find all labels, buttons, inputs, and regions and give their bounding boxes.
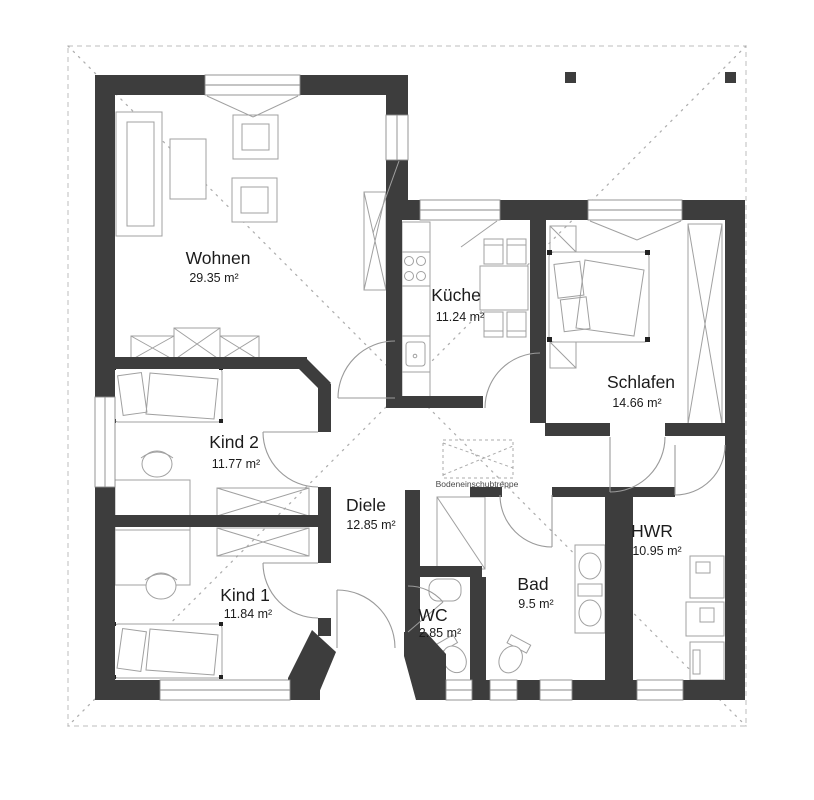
window-kind2-left xyxy=(95,397,115,487)
toilet xyxy=(494,635,530,677)
window-bad-bottom xyxy=(490,680,517,700)
label-wc: WC xyxy=(418,605,447,625)
area-bad: 9.5 m² xyxy=(518,597,553,611)
wardrobe xyxy=(217,528,309,556)
vanity xyxy=(575,545,605,633)
label-schlafen: Schlafen xyxy=(607,372,675,392)
dining-table xyxy=(480,239,528,337)
furniture-schlafen xyxy=(547,224,722,424)
door-bad xyxy=(500,495,552,547)
wardrobe xyxy=(217,488,309,516)
hand-basin xyxy=(429,579,461,601)
kitchen-counter xyxy=(402,222,430,402)
furniture-hwr xyxy=(686,556,724,680)
window-bad-bottom2 xyxy=(540,680,572,700)
washing-machine xyxy=(686,602,724,636)
floor-plan-canvas: Wohnen 29.35 m² Küche 11.24 m² Schlafen … xyxy=(0,0,814,800)
single-bed xyxy=(112,366,223,423)
double-bed xyxy=(547,250,650,342)
chair xyxy=(141,451,173,477)
door-schlafen xyxy=(610,437,665,492)
loft-ladder-hatch xyxy=(443,440,513,478)
area-wc: 2.85 m² xyxy=(419,626,461,640)
appliance xyxy=(690,556,724,598)
window-hwr-bottom xyxy=(637,680,683,700)
roof-post xyxy=(565,72,576,83)
shower xyxy=(437,497,485,569)
armchair xyxy=(232,178,277,222)
furniture-kind1 xyxy=(112,528,309,679)
furniture-wohnen xyxy=(116,112,386,360)
roof-post xyxy=(725,72,736,83)
label-kind1: Kind 1 xyxy=(220,585,270,605)
area-kind1: 11.84 m² xyxy=(224,607,272,621)
area-hwr: 10.95 m² xyxy=(632,544,681,558)
window-kind1-bottom xyxy=(160,680,290,700)
area-diele: 12.85 m² xyxy=(346,518,395,532)
area-kind2: 11.77 m² xyxy=(212,457,260,471)
label-wohnen: Wohnen xyxy=(186,248,251,268)
nightstand xyxy=(550,342,576,368)
label-bad: Bad xyxy=(517,574,548,594)
sofa xyxy=(116,112,162,236)
single-bed xyxy=(112,622,223,679)
door-kind2 xyxy=(263,432,318,487)
window-wc-bottom xyxy=(446,680,472,700)
appliance xyxy=(690,642,724,680)
coffee-table xyxy=(170,139,206,199)
door-entry xyxy=(337,590,395,648)
label-loft-ladder: Bodeneinschubtreppe xyxy=(436,479,519,489)
window-schlafen xyxy=(588,200,682,240)
floor-plan-drawing: Wohnen 29.35 m² Küche 11.24 m² Schlafen … xyxy=(0,0,814,800)
area-kueche: 11.24 m² xyxy=(436,310,484,324)
label-kueche: Küche xyxy=(431,285,481,305)
door-hwr xyxy=(675,445,725,495)
nightstand xyxy=(550,226,576,252)
window-wohnen-top xyxy=(205,75,300,117)
chair xyxy=(145,573,177,599)
label-kind2: Kind 2 xyxy=(209,432,259,452)
area-wohnen: 29.35 m² xyxy=(189,271,238,285)
wardrobe xyxy=(688,224,722,424)
label-diele: Diele xyxy=(346,495,386,515)
armchair xyxy=(233,115,278,159)
kitchen-sink xyxy=(402,336,430,372)
sideboard xyxy=(131,328,259,360)
label-hwr: HWR xyxy=(631,521,673,541)
stove xyxy=(402,252,430,286)
area-schlafen: 14.66 m² xyxy=(612,396,661,410)
